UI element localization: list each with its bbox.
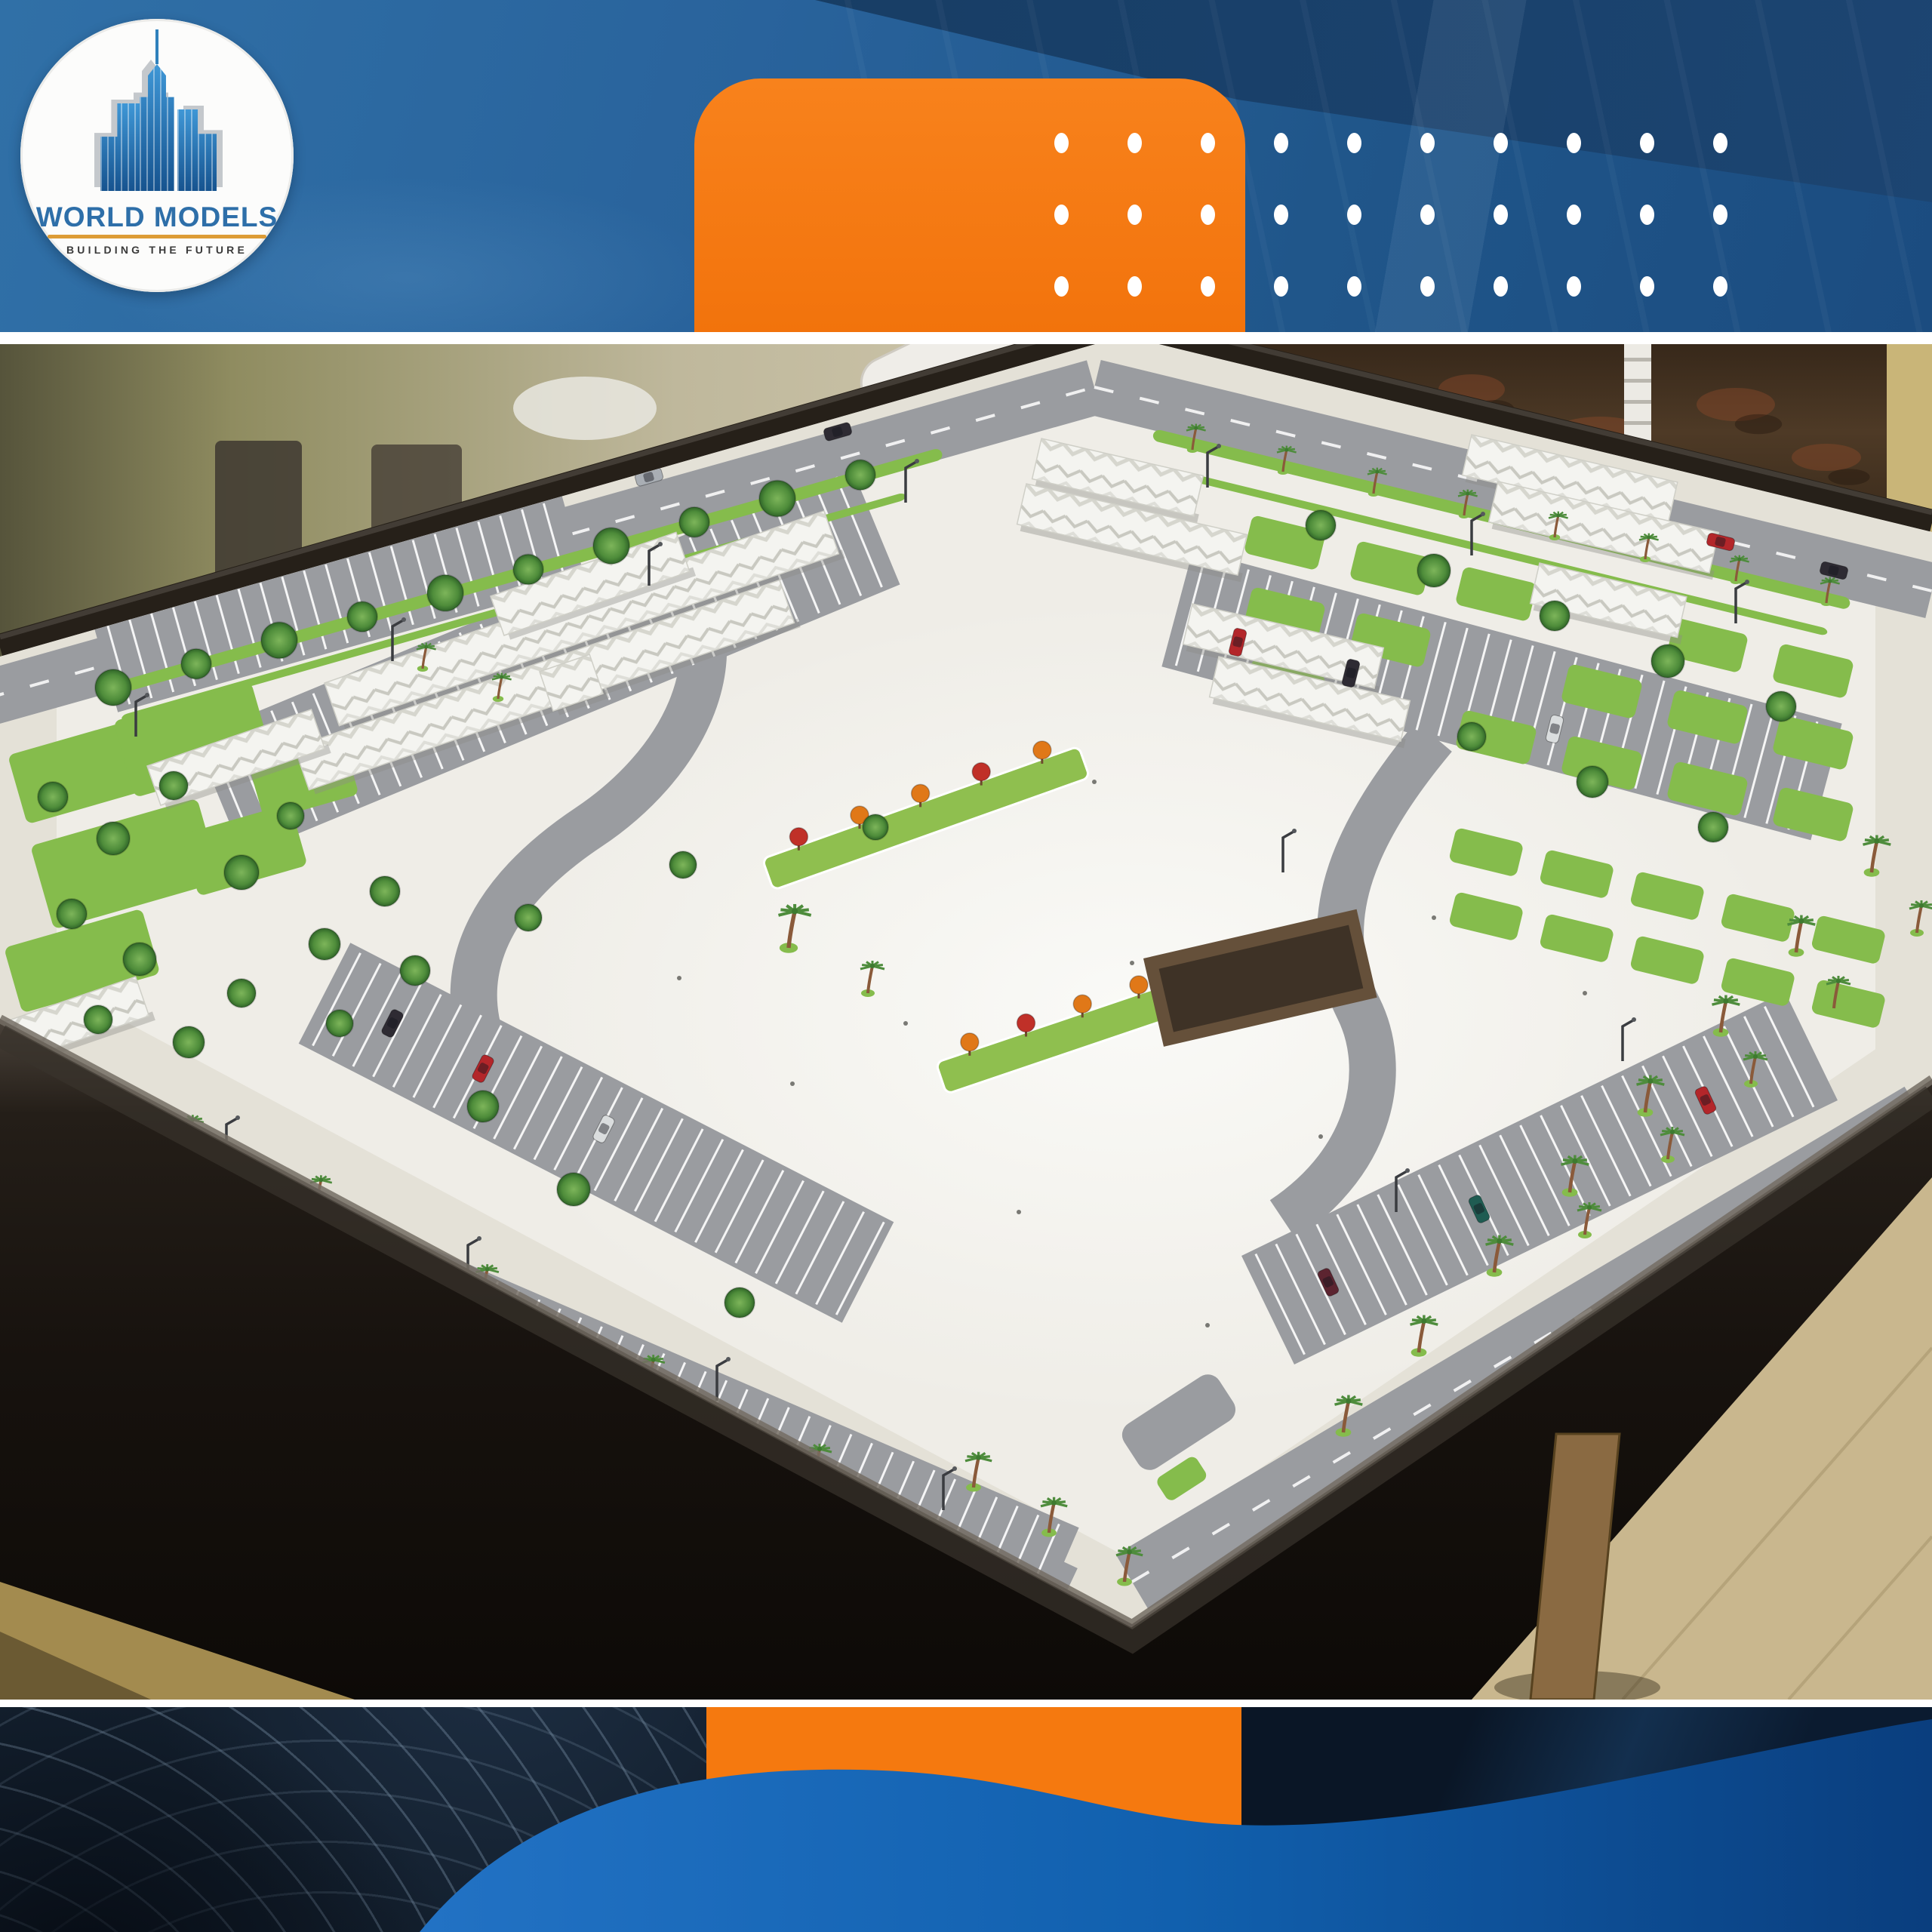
logo-title: WORLD MODELS [20,202,294,233]
dot [1640,205,1654,225]
logo-underline [48,235,266,238]
dot [1274,205,1288,225]
dot [1713,205,1727,225]
dot [1347,133,1361,153]
dot [1128,133,1142,153]
dot [1347,276,1361,297]
logo-building-icon [78,58,236,191]
dot [1128,276,1142,297]
dot [1640,276,1654,297]
dot [1640,133,1654,153]
dot [1420,276,1435,297]
dot [1128,205,1142,225]
dot [1054,276,1069,297]
bottom-banner [0,1707,1932,1932]
dot [1201,205,1215,225]
dot [1494,205,1508,225]
dot [1201,133,1215,153]
dot [1201,276,1215,297]
dot [1274,133,1288,153]
dot [1420,205,1435,225]
dot [1274,276,1288,297]
dot [1054,133,1069,153]
dot [1494,133,1508,153]
poster: WORLD MODELS BUILDING THE FUTURE [0,0,1932,1932]
dot [1420,133,1435,153]
dot [1347,205,1361,225]
dot [1567,133,1581,153]
top-banner: WORLD MODELS BUILDING THE FUTURE [0,0,1932,332]
dot [1567,276,1581,297]
model-photo [0,344,1932,1700]
dot [1713,133,1727,153]
footer-wave-shape [0,1707,1932,1932]
dot [1567,205,1581,225]
logo-badge: WORLD MODELS BUILDING THE FUTURE [20,19,294,292]
dot [1713,276,1727,297]
building-left [100,103,143,191]
building-spire [155,29,158,64]
building-right [177,109,217,191]
dot [1054,205,1069,225]
dot [1494,276,1508,297]
scale-model-illustration [0,344,1932,1700]
logo-tagline: BUILDING THE FUTURE [20,244,294,256]
